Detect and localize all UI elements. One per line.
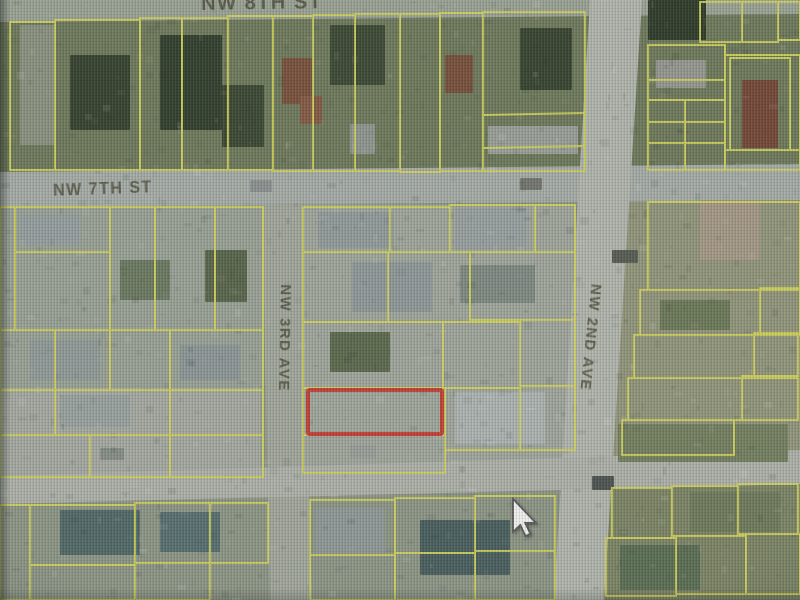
map-feature [420, 520, 510, 575]
map-feature [300, 96, 322, 124]
map-feature [592, 476, 614, 490]
aerial-parcel-map[interactable]: NW 8TH STNW 7TH STNW 3RD AVENW 2ND AVE [0, 0, 800, 600]
street-label-nw-7th-st: NW 7TH ST [53, 178, 153, 198]
map-feature [250, 180, 272, 192]
map-feature [455, 208, 527, 250]
screen-photo: NW 8TH STNW 7TH STNW 3RD AVENW 2ND AVE [0, 0, 800, 600]
street-label-top: NW 8TH ST [201, 0, 323, 14]
map-feature [742, 80, 778, 148]
map-feature [318, 212, 393, 248]
map-feature [656, 60, 706, 88]
street-label-nw-3rd-ave: NW 3RD AVE [276, 284, 295, 392]
map-feature [60, 510, 140, 555]
map-feature [690, 492, 780, 532]
map-feature [160, 35, 222, 130]
map-feature [350, 445, 376, 458]
map-feature [618, 424, 788, 462]
map-feature [315, 508, 385, 553]
map-feature [700, 200, 760, 260]
map-feature [30, 340, 100, 380]
map-feature [330, 332, 390, 372]
map-feature [20, 25, 55, 145]
map-feature [612, 250, 638, 263]
